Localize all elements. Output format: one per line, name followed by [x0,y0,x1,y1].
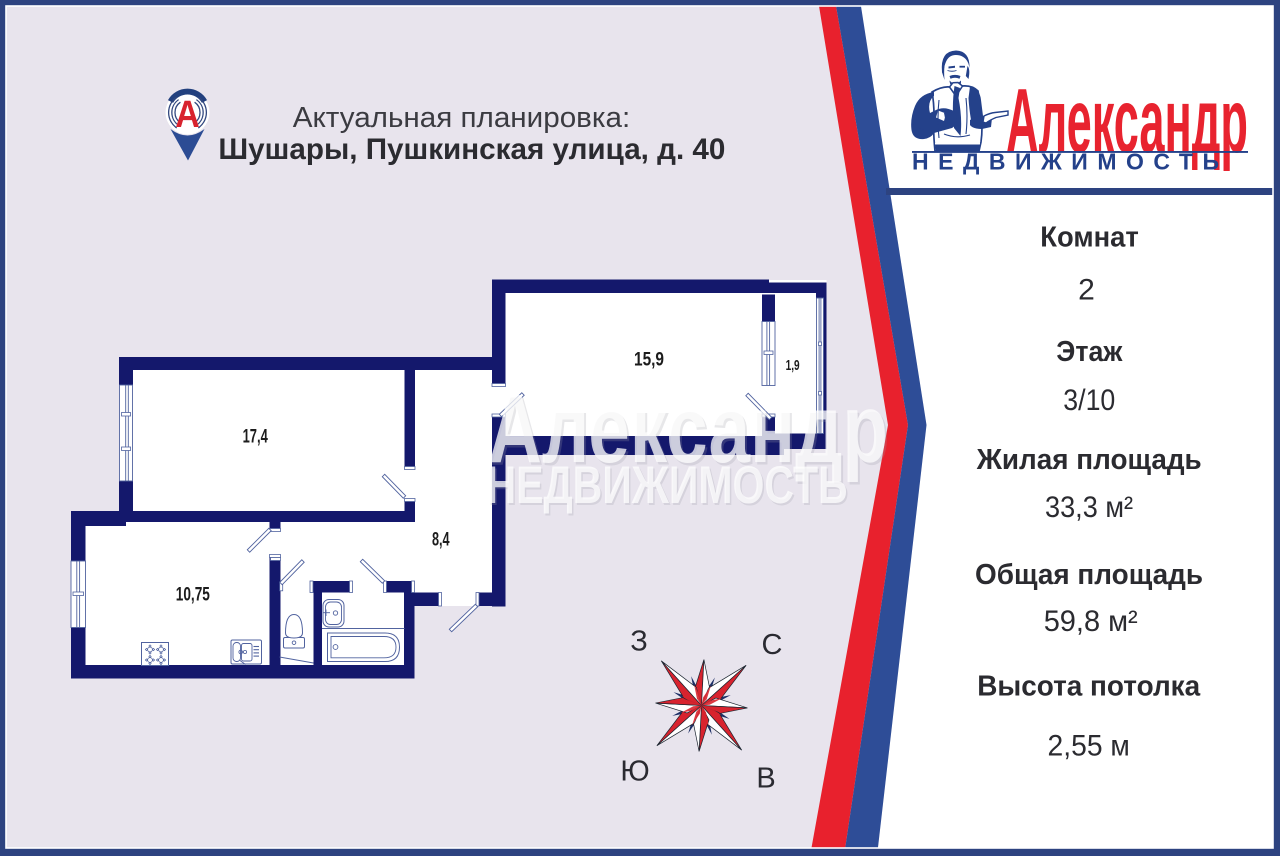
svg-text:Общая площадь: Общая площадь [975,559,1203,591]
svg-text:1,9: 1,9 [786,357,800,374]
svg-text:Шушары, Пушкинская улица, д. 4: Шушары, Пушкинская улица, д. 40 [218,133,725,166]
svg-text:Ю: Ю [620,756,649,788]
svg-text:2,55 м: 2,55 м [1048,729,1130,762]
svg-text:Высота потолка: Высота потолка [977,670,1201,702]
svg-text:Комнат: Комнат [1040,222,1139,254]
svg-text:15,9: 15,9 [634,350,664,371]
svg-text:С: С [762,629,783,661]
svg-text:17,4: 17,4 [243,427,268,448]
svg-text:Жилая площадь: Жилая площадь [976,444,1202,476]
svg-text:НЕДВИЖИМОСТЬ: НЕДВИЖИМОСТЬ [487,456,848,515]
svg-text:33,3 м²: 33,3 м² [1045,491,1133,524]
svg-text:2: 2 [1078,274,1095,307]
svg-text:А: А [175,94,200,136]
svg-text:10,75: 10,75 [176,585,210,606]
svg-text:Актуальная планировка:: Актуальная планировка: [293,102,631,134]
svg-text:59,8 м²: 59,8 м² [1044,605,1138,638]
svg-text:З: З [630,626,648,658]
svg-text:8,4: 8,4 [432,530,450,551]
svg-text:Этаж: Этаж [1056,336,1122,368]
svg-text:В: В [756,763,775,795]
svg-text:3/10: 3/10 [1063,384,1115,417]
